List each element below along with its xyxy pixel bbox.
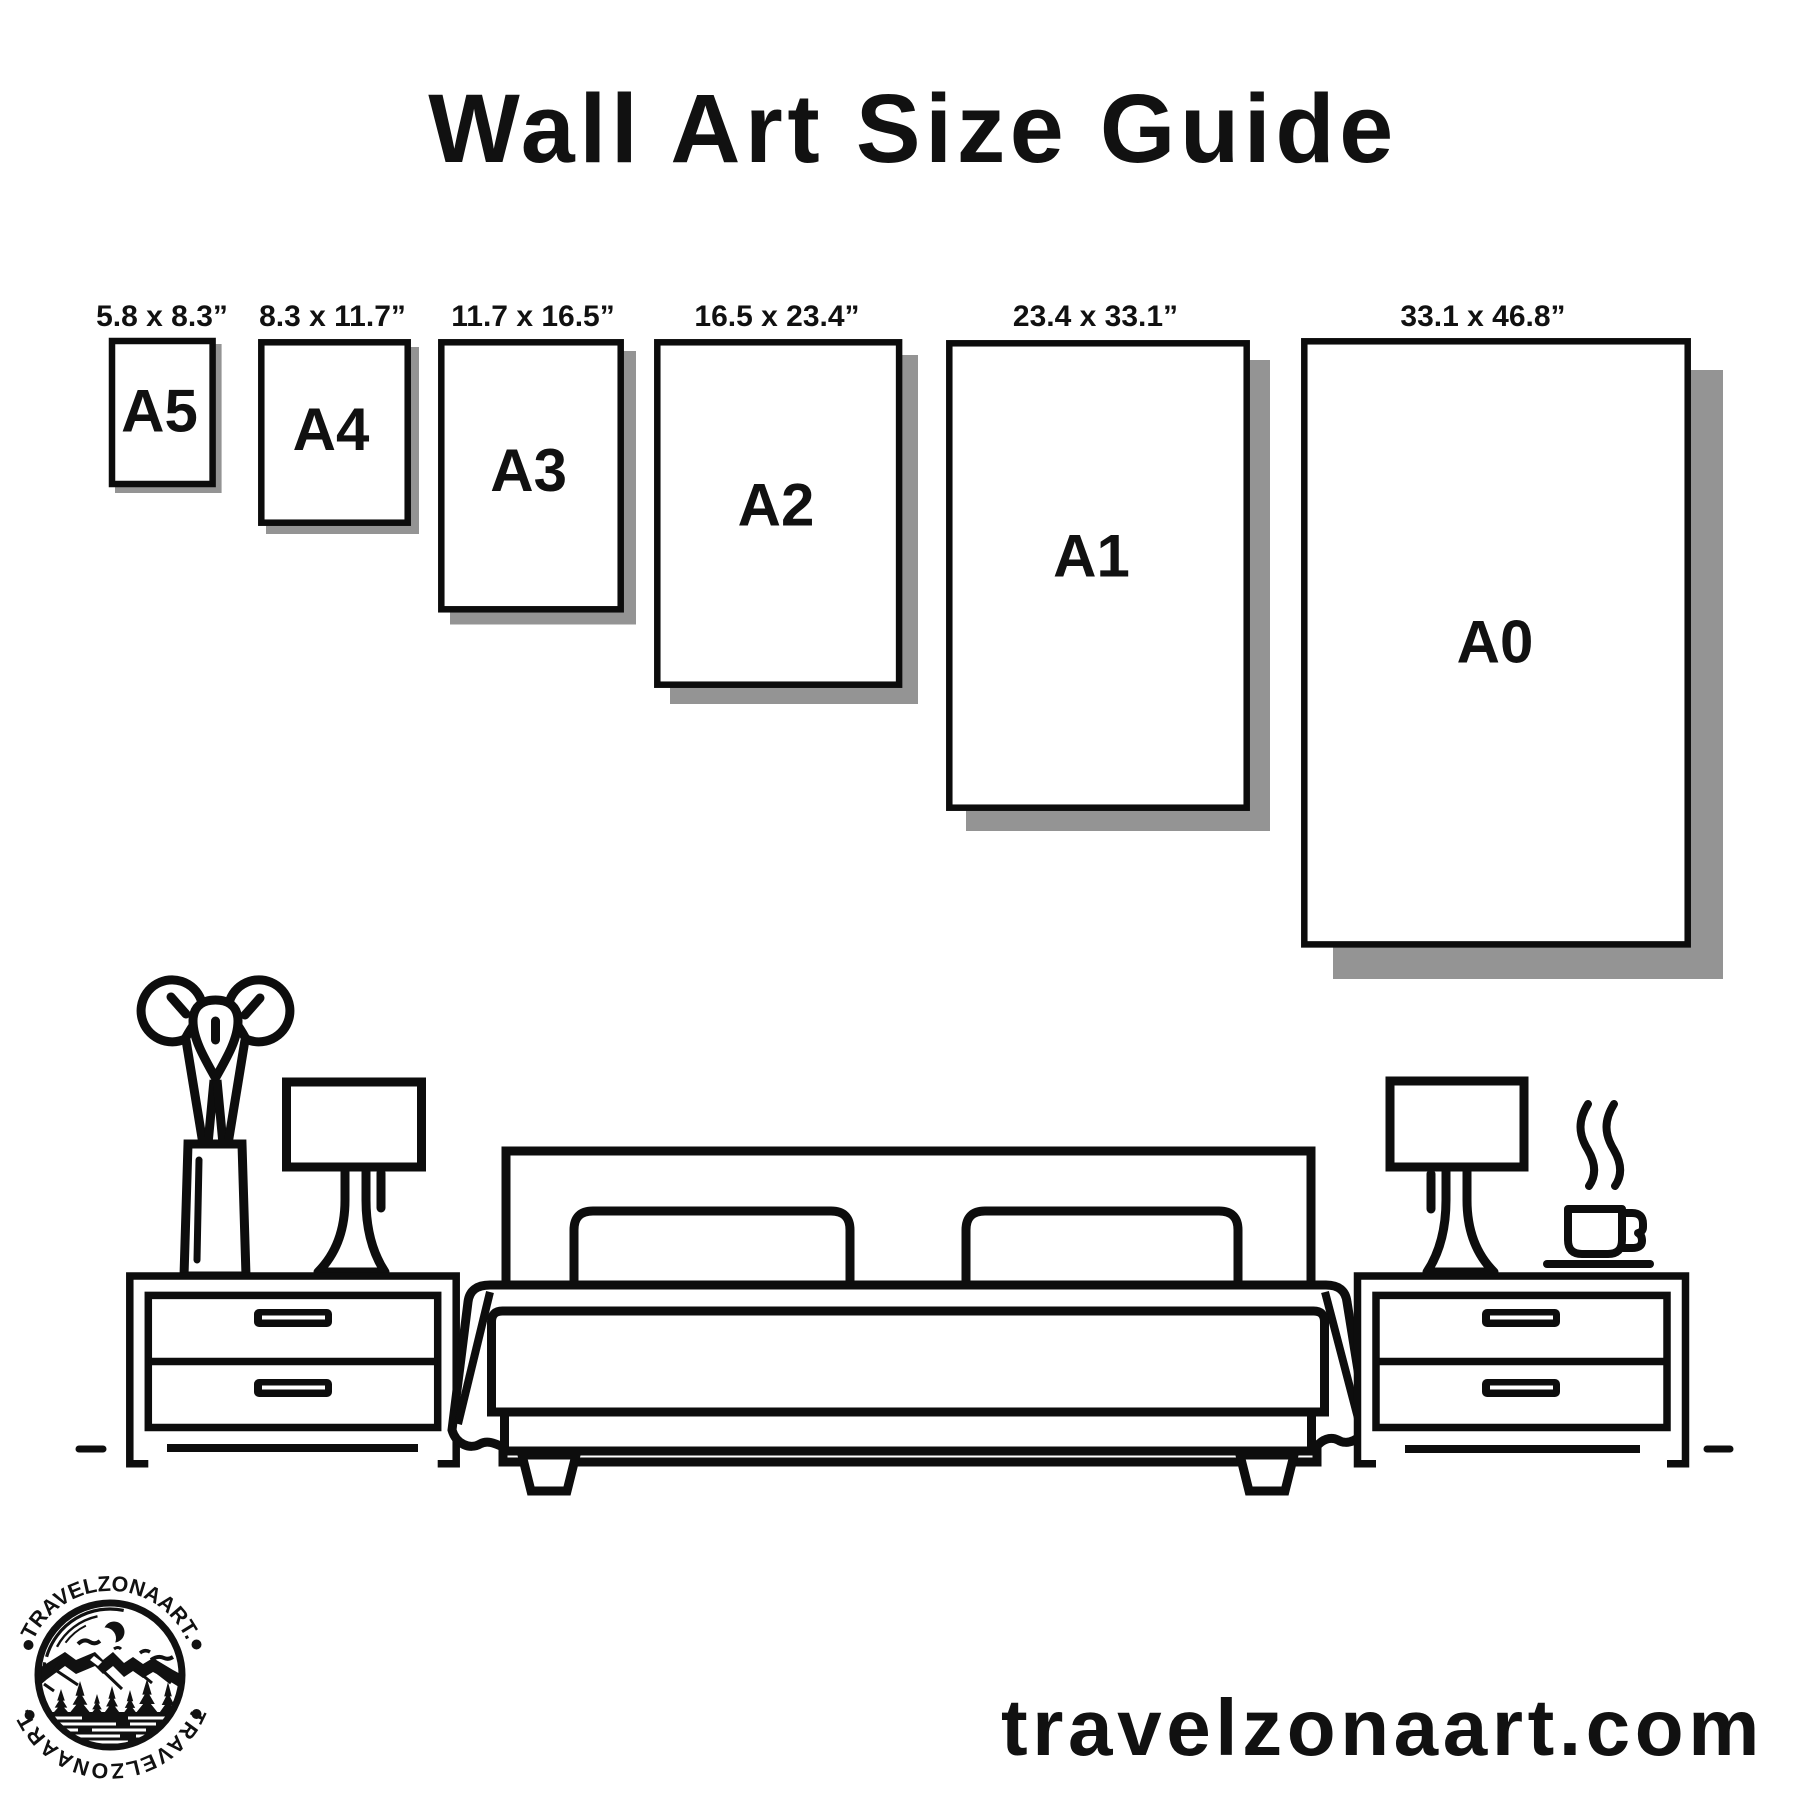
svg-text:A2: A2 — [738, 472, 815, 539]
svg-text:Wall Art Size Guide: Wall Art Size Guide — [428, 74, 1398, 183]
svg-text:A5: A5 — [121, 378, 198, 445]
svg-text:travelzonaart.com: travelzonaart.com — [1001, 1683, 1764, 1772]
svg-text:16.5 x 23.4”: 16.5 x 23.4” — [694, 300, 859, 333]
svg-text:A0: A0 — [1457, 609, 1534, 676]
svg-text:33.1 x 46.8”: 33.1 x 46.8” — [1400, 300, 1565, 333]
svg-text:5.8 x 8.3”: 5.8 x 8.3” — [96, 300, 228, 333]
svg-text:11.7 x 16.5”: 11.7 x 16.5” — [451, 300, 614, 333]
svg-text:A4: A4 — [293, 396, 370, 463]
svg-text:23.4 x 33.1”: 23.4 x 33.1” — [1013, 300, 1178, 333]
svg-text:8.3 x 11.7”: 8.3 x 11.7” — [259, 300, 406, 333]
svg-text:A1: A1 — [1053, 523, 1130, 590]
svg-text:A3: A3 — [490, 437, 567, 504]
